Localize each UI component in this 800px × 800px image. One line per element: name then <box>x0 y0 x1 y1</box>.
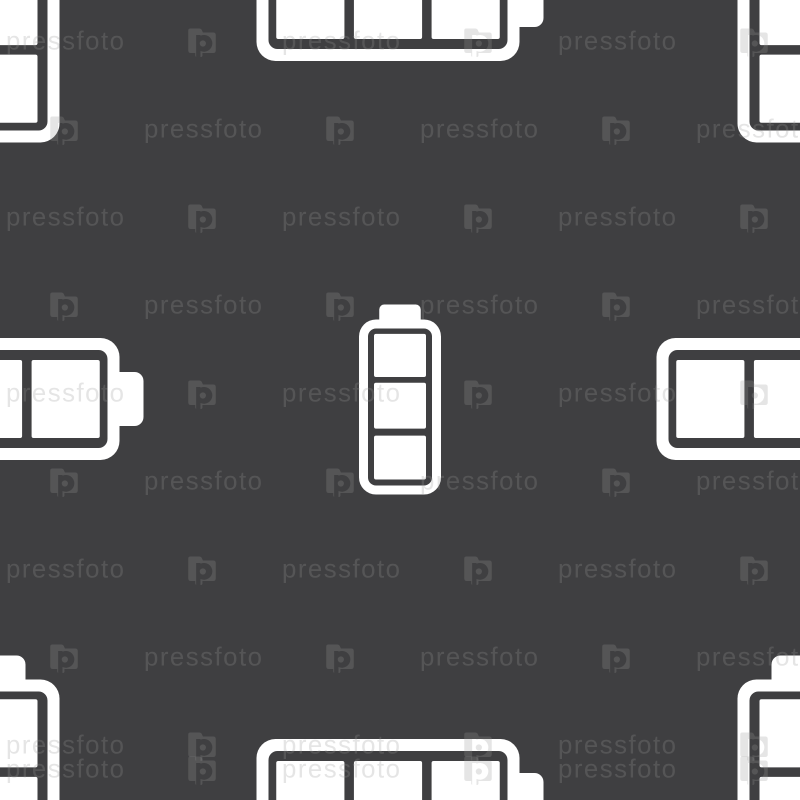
svg-text:pressfoto: pressfoto <box>696 468 800 496</box>
svg-text:pressfoto: pressfoto <box>144 292 262 320</box>
svg-text:pressfoto: pressfoto <box>144 644 262 672</box>
svg-text:pressfoto: pressfoto <box>420 468 538 496</box>
svg-text:pressfoto: pressfoto <box>6 756 124 784</box>
svg-text:pressfoto: pressfoto <box>282 556 400 584</box>
svg-text:pressfoto: pressfoto <box>6 28 124 56</box>
svg-text:pressfoto: pressfoto <box>282 28 400 56</box>
svg-text:pressfoto: pressfoto <box>282 204 400 232</box>
svg-text:pressfoto: pressfoto <box>558 556 676 584</box>
svg-text:pressfoto: pressfoto <box>144 116 262 144</box>
svg-text:pressfoto: pressfoto <box>282 756 400 784</box>
svg-text:pressfoto: pressfoto <box>558 756 676 784</box>
svg-text:pressfoto: pressfoto <box>6 556 124 584</box>
svg-text:pressfoto: pressfoto <box>144 468 262 496</box>
svg-text:pressfoto: pressfoto <box>696 116 800 144</box>
svg-text:pressfoto: pressfoto <box>558 204 676 232</box>
svg-text:pressfoto: pressfoto <box>558 28 676 56</box>
svg-text:pressfoto: pressfoto <box>6 204 124 232</box>
svg-text:pressfoto: pressfoto <box>420 116 538 144</box>
svg-text:pressfoto: pressfoto <box>420 644 538 672</box>
svg-text:pressfoto: pressfoto <box>558 380 676 408</box>
svg-text:pressfoto: pressfoto <box>696 644 800 672</box>
svg-text:pressfoto: pressfoto <box>6 380 124 408</box>
svg-text:pressfoto: pressfoto <box>696 292 800 320</box>
svg-text:pressfoto: pressfoto <box>282 380 400 408</box>
svg-text:pressfoto: pressfoto <box>420 292 538 320</box>
